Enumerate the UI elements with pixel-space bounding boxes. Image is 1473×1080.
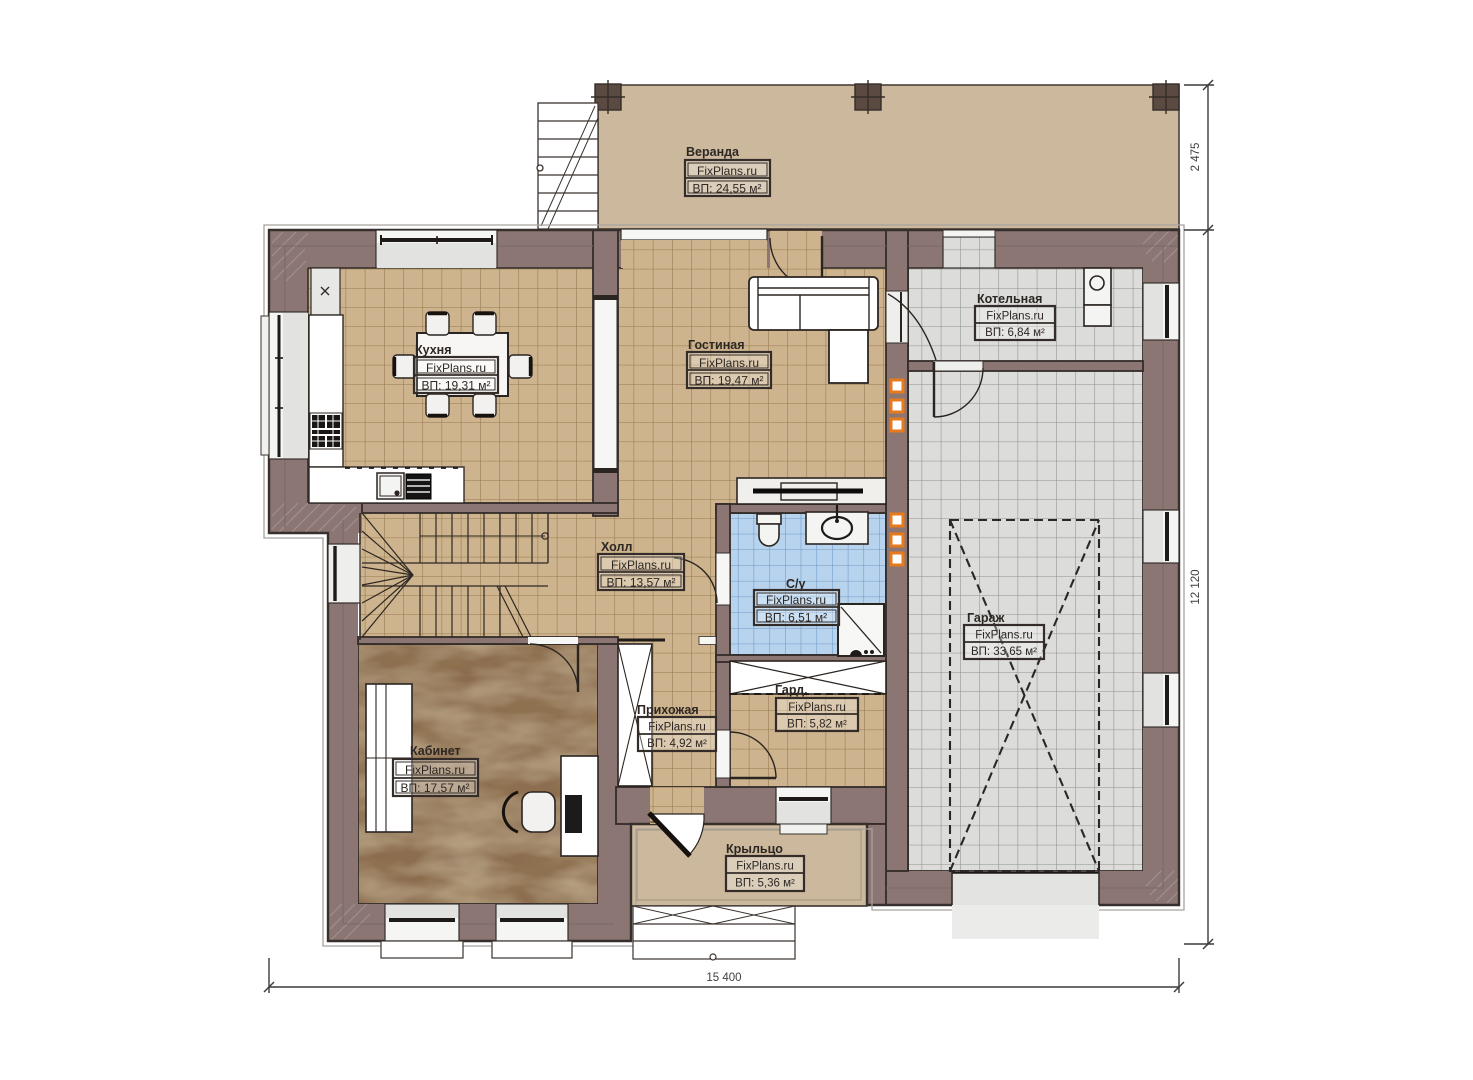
svg-text:FixPlans.ru: FixPlans.ru xyxy=(975,630,1033,642)
svg-text:FixPlans.ru: FixPlans.ru xyxy=(697,164,757,178)
svg-text:ВП: 5,36 м²: ВП: 5,36 м² xyxy=(735,878,795,890)
svg-text:ВП: 19,31 м²: ВП: 19,31 м² xyxy=(422,379,491,393)
svg-text:ВП: 6,51 м²: ВП: 6,51 м² xyxy=(765,611,827,625)
svg-text:Гард.: Гард. xyxy=(775,683,808,697)
svg-text:FixPlans.ru: FixPlans.ru xyxy=(736,861,794,873)
svg-text:Веранда: Веранда xyxy=(686,145,740,159)
svg-text:15 400: 15 400 xyxy=(706,972,741,984)
svg-text:FixPlans.ru: FixPlans.ru xyxy=(766,593,826,607)
svg-text:ВП: 19,47 м²: ВП: 19,47 м² xyxy=(695,374,764,388)
svg-text:Котельная: Котельная xyxy=(977,292,1042,306)
svg-text:Гараж: Гараж xyxy=(967,611,1004,625)
svg-text:Кухня: Кухня xyxy=(415,343,452,357)
svg-text:ВП: 4,92 м²: ВП: 4,92 м² xyxy=(647,738,707,750)
svg-text:ВП: 13,57 м²: ВП: 13,57 м² xyxy=(607,576,676,590)
svg-text:ВП: 17,57 м²: ВП: 17,57 м² xyxy=(401,781,470,795)
svg-text:ВП: 5,82 м²: ВП: 5,82 м² xyxy=(787,719,847,731)
svg-text:ВП: 24,55 м²: ВП: 24,55 м² xyxy=(693,182,762,196)
svg-text:FixPlans.ru: FixPlans.ru xyxy=(986,311,1044,323)
svg-text:ВП: 6,84 м²: ВП: 6,84 м² xyxy=(985,327,1045,339)
svg-text:FixPlans.ru: FixPlans.ru xyxy=(611,558,671,572)
svg-text:2 475: 2 475 xyxy=(1190,143,1202,172)
svg-text:FixPlans.ru: FixPlans.ru xyxy=(699,356,759,370)
svg-text:Крыльцо: Крыльцо xyxy=(726,842,783,856)
svg-text:FixPlans.ru: FixPlans.ru xyxy=(788,702,846,714)
svg-text:Холл: Холл xyxy=(601,540,632,554)
svg-text:12 120: 12 120 xyxy=(1190,569,1202,604)
svg-text:FixPlans.ru: FixPlans.ru xyxy=(405,763,465,777)
svg-text:Кабинет: Кабинет xyxy=(410,744,461,758)
svg-text:ВП: 33,65 м²: ВП: 33,65 м² xyxy=(971,646,1037,658)
svg-text:Прихожая: Прихожая xyxy=(637,703,699,717)
svg-text:FixPlans.ru: FixPlans.ru xyxy=(648,722,706,734)
svg-text:Гостиная: Гостиная xyxy=(688,338,745,352)
svg-text:FixPlans.ru: FixPlans.ru xyxy=(426,361,486,375)
